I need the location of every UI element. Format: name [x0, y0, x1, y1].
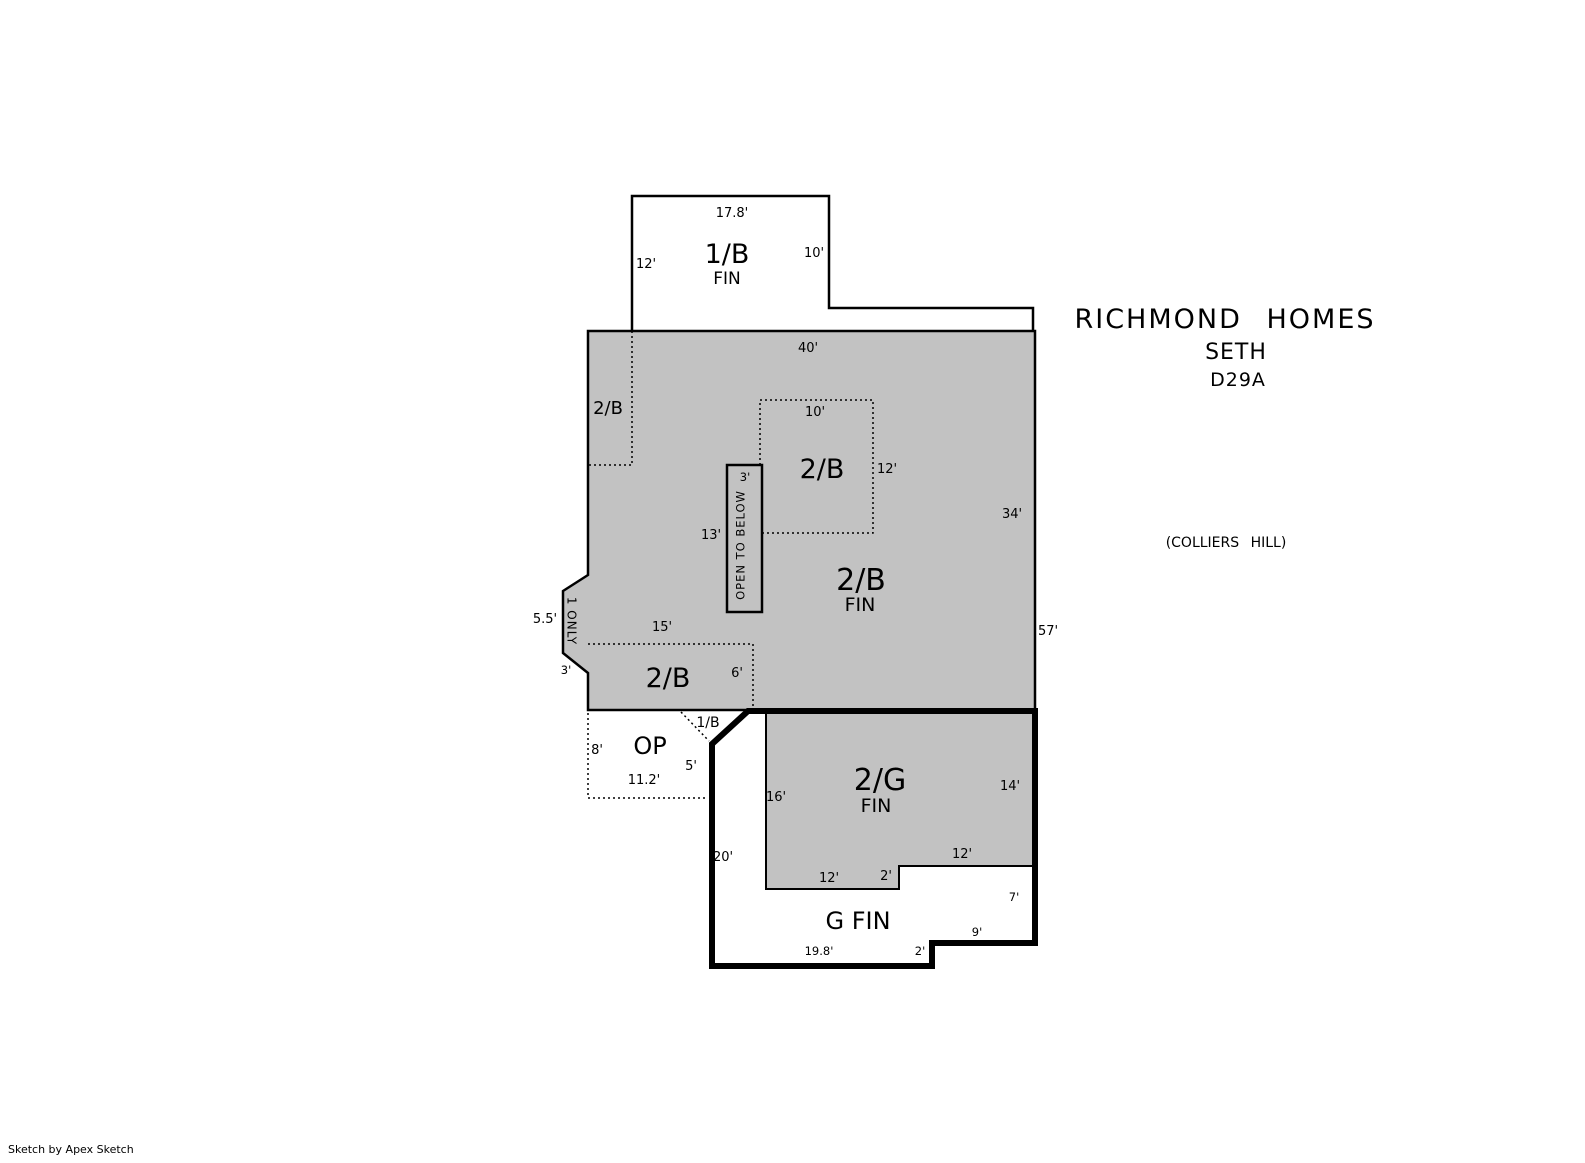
dim-bump-bottom: 3': [561, 663, 571, 677]
dim-op-bottom: 11.2': [628, 773, 661, 788]
dim-op-right: 5': [685, 759, 697, 774]
corner-label-op: 1/B: [696, 715, 719, 731]
dim-main-right-outer: 57': [1038, 624, 1058, 639]
community-label: (COLLIERS HILL): [1166, 535, 1287, 551]
plan-code: D29A: [1210, 369, 1266, 391]
dim-g-left: 20': [713, 850, 733, 865]
garage-upper-area: [766, 711, 1035, 889]
plan-title: RICHMOND HOMES: [1074, 304, 1375, 335]
dim-main-right-inner: 34': [1002, 507, 1022, 522]
dim-g-right: 7': [1009, 890, 1019, 904]
bump-label: 1 ONLY: [565, 597, 579, 645]
dim-room-middle-right: 12': [877, 462, 897, 477]
main-level-area: [563, 331, 1035, 710]
status-label-upper: FIN: [713, 269, 741, 289]
dim-open-below-width: 3': [740, 470, 750, 484]
dim-room-bl-top: 15': [652, 620, 672, 635]
status-label-main: FIN: [845, 594, 876, 616]
plan-model: SETH: [1205, 340, 1267, 365]
room-label-op: OP: [633, 732, 666, 760]
dim-g-bottom: 19.8': [805, 944, 834, 958]
room-label-2g: 2/G: [854, 763, 906, 798]
floorplan-canvas: 17.8' 1/B FIN 12' 10' 40' 2/B 10' 2/B 12…: [0, 0, 1585, 1163]
room-label-main: 2/B: [836, 563, 886, 598]
dim-2g-left: 16': [766, 790, 786, 805]
dim-upper-left: 12': [636, 257, 656, 272]
dim-bump-outer: 5.5': [533, 612, 557, 627]
room-label-middle: 2/B: [800, 454, 845, 485]
open-to-below-label: OPEN TO BELOW: [734, 490, 748, 600]
dim-upper-right: 10': [804, 246, 824, 261]
room-label-bottom-left: 2/B: [646, 663, 691, 694]
dim-2g-bottom: 12': [819, 871, 839, 886]
room-label-top-left: 2/B: [593, 398, 623, 419]
dim-upper-top: 17.8': [716, 206, 749, 221]
dim-g-step: 9': [972, 925, 982, 939]
status-label-2g: FIN: [861, 795, 892, 817]
dim-g-bottom-step: 2': [915, 944, 925, 958]
dim-open-below-left: 13': [701, 528, 721, 543]
sketch-credit: Sketch by Apex Sketch: [8, 1143, 134, 1156]
dim-2g-right: 14': [1000, 779, 1020, 794]
dim-room-bl-right: 6': [731, 666, 743, 681]
dim-op-left: 8': [591, 743, 603, 758]
dim-2g-step-top: 12': [952, 847, 972, 862]
upper-level-outline: [632, 196, 1033, 330]
dim-main-top: 40': [798, 341, 818, 356]
room-label-g: G FIN: [825, 907, 890, 935]
room-label-upper: 1/B: [705, 239, 750, 270]
dim-2g-bottom-step: 2': [880, 869, 892, 884]
dim-room-middle-top: 10': [805, 405, 825, 420]
